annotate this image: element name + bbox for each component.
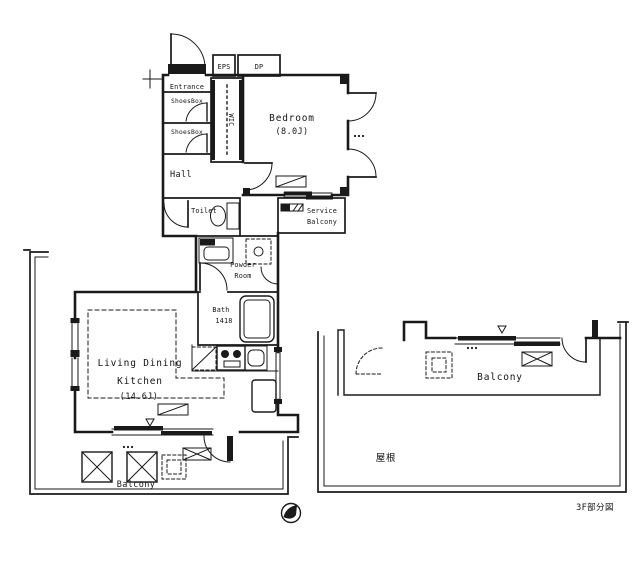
- bathtub: [240, 296, 274, 342]
- stove: [217, 346, 245, 370]
- compass-needle: [284, 505, 298, 519]
- eps-label: EPS: [218, 63, 231, 71]
- terrace-parapet-outer: [318, 322, 628, 492]
- room-powder: Powder Room: [199, 238, 278, 284]
- entrance-label: Entrance: [170, 83, 204, 91]
- powder-room-label-2: Room: [234, 272, 251, 280]
- bath-size: 1418: [215, 317, 232, 325]
- service-balcony-outline: [278, 198, 345, 233]
- evacuation-hatch-inner: [167, 460, 181, 474]
- service-balcony-label-1: Service: [307, 207, 337, 215]
- ldk-size: (14.6J): [120, 392, 159, 402]
- shoes-boxes: ShoesBox ShoesBox: [171, 98, 207, 152]
- entrance-door-arc: [171, 34, 205, 68]
- terrace-door-arc: [562, 338, 586, 362]
- service-balcony-label-2: Balcony: [307, 218, 337, 226]
- column: [592, 320, 598, 338]
- powder-door-arc: [261, 267, 278, 284]
- drain-hatch-lines: [293, 204, 303, 211]
- dp-label: DP: [255, 63, 264, 71]
- ldk-label-1: Living Dining: [98, 358, 183, 369]
- room-wic: WIC: [211, 80, 243, 160]
- hatch-panel-diagonal: [158, 404, 188, 415]
- column: [340, 187, 348, 195]
- column: [243, 188, 250, 195]
- bath-label: Bath: [212, 306, 229, 314]
- balcony-door-leaf: [227, 436, 233, 461]
- balcony-southwest: Balcony: [24, 250, 298, 494]
- planter-cross: [127, 452, 157, 482]
- toilet-bowl: [211, 206, 226, 226]
- floor-plan-drawing: EPS DP Entrance ShoesBox ShoesBox WIC Be…: [0, 0, 640, 569]
- grill: [224, 361, 240, 367]
- toilet-tank: [227, 203, 239, 229]
- sink-bowl: [248, 350, 264, 366]
- wic-wall: [239, 80, 243, 160]
- balcony-southeast: Balcony 屋根: [318, 320, 628, 492]
- planter-cross: [82, 452, 112, 482]
- evacuation-hatch: [162, 455, 186, 479]
- west-windows: [71, 318, 80, 391]
- hall-label: Hall: [170, 170, 192, 180]
- ldk-label-2: Kitchen: [117, 376, 163, 387]
- entrance-step: [168, 64, 206, 74]
- bathtub-inner: [244, 300, 270, 338]
- section-marker: [146, 419, 154, 426]
- kitchen-counter: [192, 345, 278, 371]
- bath-door-arc: [200, 263, 227, 290]
- roof-label: 屋根: [376, 452, 397, 464]
- room-ldk: Living Dining Kitchen (14.6J): [71, 310, 283, 462]
- cupboard: [252, 380, 276, 412]
- washer-drum: [254, 247, 263, 256]
- service-balcony: Service Balcony: [278, 198, 345, 233]
- section-marker: [498, 326, 506, 333]
- burner: [233, 350, 241, 358]
- balcony-parapet-outer: [24, 250, 298, 494]
- evacuation-hatch-inner: [432, 358, 446, 372]
- east-window: [274, 347, 282, 404]
- hatch-panel-diagonal: [276, 176, 306, 187]
- shoes-box-lower-label: ShoesBox: [171, 129, 203, 136]
- washbasin-bowl: [204, 247, 229, 260]
- fridge-diagonal: [192, 347, 216, 370]
- terrace-sliding-sash: [458, 336, 516, 341]
- balcony-se-label: Balcony: [477, 372, 523, 383]
- bedroom-label: Bedroom: [269, 113, 315, 124]
- sliding-window-sash: [284, 192, 312, 196]
- balcony-sw-label: Balcony: [117, 480, 156, 490]
- washbasin-top: [200, 239, 215, 246]
- room-bedroom: Bedroom (8.0J): [245, 93, 376, 200]
- evacuation-hatch: [426, 352, 452, 378]
- partition-door-dashed: [356, 348, 382, 374]
- wic-wall: [211, 80, 215, 160]
- terrace-sliding-sash: [514, 342, 560, 347]
- bedroom-size: (8.0J): [275, 127, 308, 137]
- sliding-door-sash: [161, 431, 212, 436]
- eps-dp-shafts: EPS DP: [213, 55, 280, 76]
- partition-walls: [163, 78, 278, 345]
- plan-caption: 3F部分図: [576, 502, 614, 513]
- shoes-box-upper-label: ShoesBox: [171, 98, 203, 105]
- wall-tick: [143, 70, 163, 88]
- casement-window-arc: [348, 93, 376, 177]
- floor-plan-page: EPS DP Entrance ShoesBox ShoesBox WIC Be…: [0, 0, 640, 569]
- drain-hatch-fill: [281, 204, 290, 211]
- room-entrance: Entrance: [168, 34, 206, 91]
- casement-window-leaf: [348, 93, 376, 177]
- vent-dots: [354, 135, 364, 137]
- toilet-door-arc: [164, 203, 188, 227]
- vent-unit-cross: [522, 352, 552, 366]
- shoes-door-arc: [186, 103, 207, 121]
- room-toilet: Toilet: [164, 201, 239, 229]
- ac-unit-cross: [183, 448, 211, 460]
- north-compass-icon: [282, 504, 301, 523]
- sliding-door-sash: [114, 426, 163, 431]
- shoes-door-arc: [186, 134, 207, 152]
- burner: [221, 350, 229, 358]
- room-hall: Hall: [170, 170, 192, 180]
- bedroom-door-arc: [245, 163, 272, 190]
- wic-label: WIC: [227, 114, 235, 127]
- column: [340, 75, 348, 84]
- powder-room-label-1: Powder: [230, 261, 256, 269]
